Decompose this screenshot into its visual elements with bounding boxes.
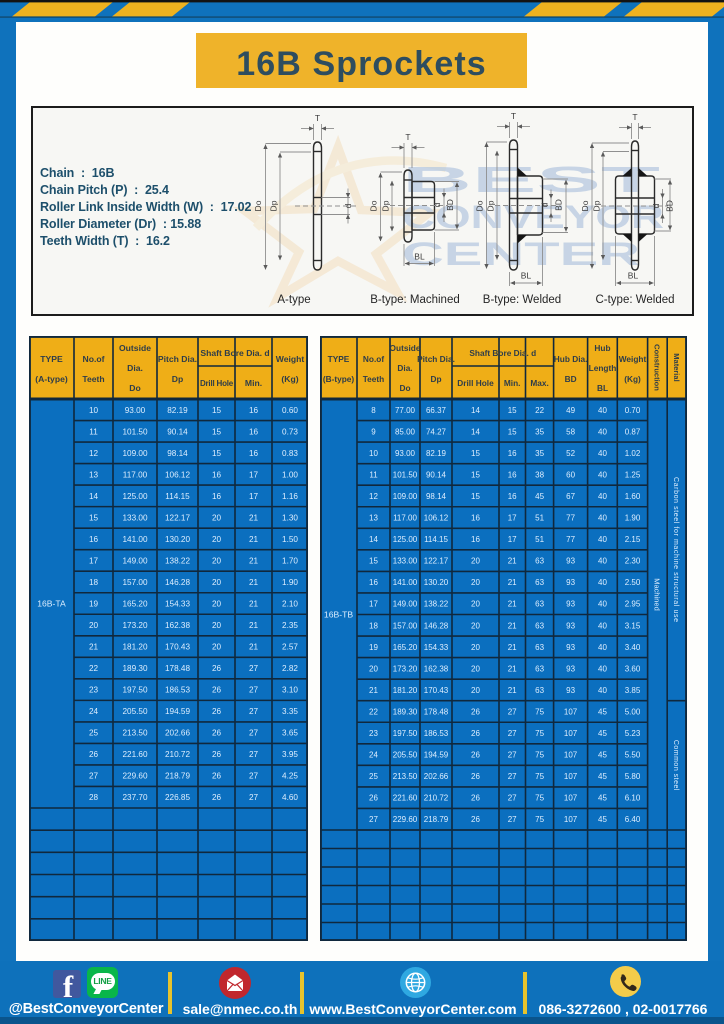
svg-text:21: 21 bbox=[508, 600, 517, 609]
svg-text:26: 26 bbox=[89, 750, 99, 759]
svg-text:3.60: 3.60 bbox=[625, 664, 641, 673]
svg-text:141.00: 141.00 bbox=[393, 578, 418, 587]
svg-text:Outside: Outside bbox=[119, 343, 151, 353]
svg-text:d: d bbox=[651, 203, 661, 208]
svg-text:45: 45 bbox=[598, 729, 607, 738]
svg-text:27: 27 bbox=[249, 793, 259, 802]
svg-text:40: 40 bbox=[598, 514, 607, 523]
svg-text:101.50: 101.50 bbox=[122, 427, 147, 436]
svg-text:74.27: 74.27 bbox=[426, 427, 447, 436]
svg-text:Hub: Hub bbox=[594, 343, 610, 353]
svg-text:2.30: 2.30 bbox=[625, 557, 641, 566]
svg-text:15: 15 bbox=[508, 427, 517, 436]
svg-text:22: 22 bbox=[369, 708, 378, 717]
svg-text:1.00: 1.00 bbox=[282, 470, 298, 479]
svg-text:16: 16 bbox=[508, 449, 517, 458]
svg-text:0.70: 0.70 bbox=[625, 406, 641, 415]
svg-text:23: 23 bbox=[89, 686, 99, 695]
svg-text:63: 63 bbox=[535, 686, 544, 695]
svg-text:Dp: Dp bbox=[486, 200, 496, 211]
svg-text:146.28: 146.28 bbox=[424, 621, 449, 630]
svg-text:107: 107 bbox=[564, 729, 578, 738]
svg-text:218.79: 218.79 bbox=[165, 772, 190, 781]
svg-text:(Kg): (Kg) bbox=[624, 374, 641, 384]
svg-text:15: 15 bbox=[212, 427, 222, 436]
svg-text:27: 27 bbox=[508, 794, 517, 803]
svg-text:26: 26 bbox=[212, 664, 222, 673]
svg-text:186.53: 186.53 bbox=[424, 729, 449, 738]
svg-text:15: 15 bbox=[471, 492, 480, 501]
svg-text:16: 16 bbox=[89, 535, 99, 544]
svg-text:162.38: 162.38 bbox=[165, 621, 190, 630]
svg-text:17: 17 bbox=[249, 492, 259, 501]
svg-text:15: 15 bbox=[212, 406, 222, 415]
svg-text:d: d bbox=[432, 202, 442, 207]
svg-text:12: 12 bbox=[369, 492, 378, 501]
svg-text:1.50: 1.50 bbox=[282, 535, 298, 544]
svg-text:173.20: 173.20 bbox=[393, 664, 418, 673]
svg-text:52: 52 bbox=[566, 449, 575, 458]
svg-text:26: 26 bbox=[471, 772, 480, 781]
svg-text:15: 15 bbox=[471, 449, 480, 458]
svg-text:122.17: 122.17 bbox=[165, 513, 190, 522]
svg-text:21: 21 bbox=[508, 578, 517, 587]
svg-text:98.14: 98.14 bbox=[167, 449, 188, 458]
svg-text:16: 16 bbox=[249, 449, 259, 458]
svg-text:93: 93 bbox=[566, 621, 575, 630]
svg-text:16: 16 bbox=[212, 470, 222, 479]
svg-text:Drill Hole: Drill Hole bbox=[457, 378, 494, 388]
svg-text:Length: Length bbox=[589, 363, 617, 373]
svg-text:75: 75 bbox=[535, 729, 544, 738]
svg-text:75: 75 bbox=[535, 751, 544, 760]
svg-text:TYPE: TYPE bbox=[40, 354, 63, 364]
svg-text:10: 10 bbox=[89, 406, 99, 415]
svg-text:BL: BL bbox=[414, 252, 425, 262]
svg-text:109.00: 109.00 bbox=[122, 449, 147, 458]
svg-text:23: 23 bbox=[369, 729, 378, 738]
svg-text:40: 40 bbox=[598, 600, 607, 609]
svg-text:194.59: 194.59 bbox=[424, 751, 449, 760]
svg-text:40: 40 bbox=[598, 686, 607, 695]
svg-text:2.10: 2.10 bbox=[282, 600, 298, 609]
svg-text:133.00: 133.00 bbox=[393, 557, 418, 566]
svg-text:No.of: No.of bbox=[83, 354, 105, 364]
svg-text:107: 107 bbox=[564, 708, 578, 717]
svg-text:6.10: 6.10 bbox=[625, 794, 641, 803]
svg-text:Do: Do bbox=[369, 200, 379, 211]
svg-text:20: 20 bbox=[212, 600, 222, 609]
svg-text:16B-TA: 16B-TA bbox=[37, 599, 66, 609]
svg-text:20: 20 bbox=[212, 513, 222, 522]
svg-text:15: 15 bbox=[471, 470, 480, 479]
svg-text:82.19: 82.19 bbox=[426, 449, 447, 458]
svg-text:27: 27 bbox=[249, 664, 259, 673]
svg-text:20: 20 bbox=[369, 664, 378, 673]
svg-text:27: 27 bbox=[249, 729, 259, 738]
svg-text:d: d bbox=[343, 203, 353, 208]
svg-text:19: 19 bbox=[89, 600, 99, 609]
svg-text:Teeth: Teeth bbox=[82, 374, 104, 384]
svg-text:Weight: Weight bbox=[276, 354, 305, 364]
svg-text:63: 63 bbox=[535, 643, 544, 652]
svg-text:1.16: 1.16 bbox=[282, 492, 298, 501]
svg-text:Dia.: Dia. bbox=[127, 363, 143, 373]
svg-text:157.00: 157.00 bbox=[122, 578, 147, 587]
svg-text:26: 26 bbox=[212, 729, 222, 738]
svg-text:40: 40 bbox=[598, 535, 607, 544]
svg-text:109.00: 109.00 bbox=[393, 492, 418, 501]
svg-text:14: 14 bbox=[471, 427, 480, 436]
svg-text:197.50: 197.50 bbox=[393, 729, 418, 738]
svg-text:157.00: 157.00 bbox=[393, 621, 418, 630]
svg-text:19: 19 bbox=[369, 643, 378, 652]
svg-text:40: 40 bbox=[598, 427, 607, 436]
svg-text:93.00: 93.00 bbox=[395, 449, 416, 458]
svg-text:106.12: 106.12 bbox=[424, 514, 449, 523]
svg-text:75: 75 bbox=[535, 772, 544, 781]
svg-text:117.00: 117.00 bbox=[393, 514, 417, 523]
svg-text:20: 20 bbox=[471, 557, 480, 566]
svg-text:77: 77 bbox=[566, 535, 575, 544]
svg-text:B-type: Welded: B-type: Welded bbox=[483, 294, 561, 306]
svg-text:BD: BD bbox=[565, 374, 577, 384]
svg-text:90.14: 90.14 bbox=[426, 470, 447, 479]
svg-text:27: 27 bbox=[249, 750, 259, 759]
svg-text:210.72: 210.72 bbox=[165, 750, 190, 759]
svg-text:26: 26 bbox=[212, 793, 222, 802]
svg-text:93: 93 bbox=[566, 686, 575, 695]
svg-text:141.00: 141.00 bbox=[122, 535, 147, 544]
svg-text:40: 40 bbox=[598, 664, 607, 673]
svg-text:0.60: 0.60 bbox=[282, 406, 298, 415]
svg-text:B-type: Machined: B-type: Machined bbox=[370, 294, 460, 306]
svg-text:20: 20 bbox=[212, 621, 222, 630]
svg-text:1.25: 1.25 bbox=[625, 470, 641, 479]
svg-text:4.25: 4.25 bbox=[282, 772, 298, 781]
svg-text:218.79: 218.79 bbox=[424, 815, 449, 824]
svg-text:130.20: 130.20 bbox=[165, 535, 190, 544]
svg-text:(Kg): (Kg) bbox=[281, 374, 298, 384]
svg-text:27: 27 bbox=[249, 707, 259, 716]
svg-text:1.02: 1.02 bbox=[625, 449, 641, 458]
svg-text:27: 27 bbox=[508, 751, 517, 760]
svg-text:40: 40 bbox=[598, 578, 607, 587]
svg-text:133.00: 133.00 bbox=[122, 513, 147, 522]
svg-text:0.83: 0.83 bbox=[282, 449, 298, 458]
svg-text:162.38: 162.38 bbox=[424, 664, 449, 673]
svg-text:75: 75 bbox=[535, 708, 544, 717]
svg-text:4.60: 4.60 bbox=[282, 793, 298, 802]
svg-text:17: 17 bbox=[89, 556, 99, 565]
svg-text:0.87: 0.87 bbox=[625, 427, 641, 436]
svg-text:22: 22 bbox=[89, 664, 99, 673]
svg-text:75: 75 bbox=[535, 815, 544, 824]
svg-text:130.20: 130.20 bbox=[424, 578, 449, 587]
svg-text:14: 14 bbox=[89, 492, 99, 501]
svg-text:26: 26 bbox=[369, 794, 378, 803]
svg-text:178.48: 178.48 bbox=[165, 664, 190, 673]
svg-text:BL: BL bbox=[521, 271, 532, 281]
svg-text:Dp: Dp bbox=[269, 200, 279, 211]
svg-text:Do: Do bbox=[253, 200, 263, 211]
svg-text:15: 15 bbox=[89, 513, 99, 522]
svg-text:Min.: Min. bbox=[504, 378, 521, 388]
svg-text:93: 93 bbox=[566, 664, 575, 673]
svg-text:165.20: 165.20 bbox=[393, 643, 418, 652]
svg-text:107: 107 bbox=[564, 751, 578, 760]
svg-text:20: 20 bbox=[471, 686, 480, 695]
svg-text:63: 63 bbox=[535, 621, 544, 630]
svg-text:Carbon steel for machine str: Carbon steel for machine structural use bbox=[672, 477, 679, 623]
svg-text:Pitch Dia.: Pitch Dia. bbox=[158, 354, 197, 364]
svg-text:101.50: 101.50 bbox=[393, 470, 418, 479]
svg-text:Dp: Dp bbox=[381, 200, 391, 211]
svg-text:Min.: Min. bbox=[245, 378, 262, 388]
svg-text:Pitch Dia.: Pitch Dia. bbox=[417, 354, 455, 364]
svg-text:93.00: 93.00 bbox=[125, 406, 146, 415]
svg-text:107: 107 bbox=[564, 815, 578, 824]
svg-text:1.90: 1.90 bbox=[282, 578, 298, 587]
svg-text:165.20: 165.20 bbox=[122, 600, 147, 609]
svg-text:20: 20 bbox=[212, 578, 222, 587]
svg-text:2.35: 2.35 bbox=[282, 621, 298, 630]
svg-text:T: T bbox=[511, 111, 516, 121]
svg-text:T: T bbox=[405, 132, 410, 142]
svg-text:40: 40 bbox=[598, 643, 607, 652]
svg-text:20: 20 bbox=[212, 535, 222, 544]
svg-text:Do: Do bbox=[580, 200, 590, 211]
svg-text:21: 21 bbox=[249, 643, 259, 652]
svg-text:21: 21 bbox=[508, 643, 517, 652]
svg-text:BD: BD bbox=[445, 199, 455, 211]
svg-text:2.57: 2.57 bbox=[282, 643, 298, 652]
svg-text:Shaft Bore Dia. d: Shaft Bore Dia. d bbox=[469, 348, 536, 358]
svg-text:85.00: 85.00 bbox=[395, 427, 416, 436]
svg-text:15: 15 bbox=[212, 449, 222, 458]
svg-text:BD: BD bbox=[554, 199, 564, 211]
svg-text:14: 14 bbox=[471, 406, 480, 415]
svg-text:63: 63 bbox=[535, 557, 544, 566]
svg-text:20: 20 bbox=[471, 664, 480, 673]
svg-text:(A-type): (A-type) bbox=[35, 374, 68, 384]
svg-text:21: 21 bbox=[508, 686, 517, 695]
svg-text:186.53: 186.53 bbox=[165, 686, 190, 695]
svg-text:5.23: 5.23 bbox=[625, 729, 641, 738]
svg-text:5.00: 5.00 bbox=[625, 708, 641, 717]
svg-text:16: 16 bbox=[249, 427, 259, 436]
svg-text:28: 28 bbox=[89, 793, 99, 802]
svg-text:210.72: 210.72 bbox=[424, 794, 449, 803]
svg-text:189.30: 189.30 bbox=[122, 664, 147, 673]
svg-text:173.20: 173.20 bbox=[122, 621, 147, 630]
svg-text:26: 26 bbox=[212, 772, 222, 781]
svg-text:21: 21 bbox=[249, 556, 259, 565]
svg-text:205.50: 205.50 bbox=[393, 751, 418, 760]
svg-text:27: 27 bbox=[508, 772, 517, 781]
svg-text:107: 107 bbox=[564, 772, 578, 781]
svg-text:35: 35 bbox=[535, 427, 544, 436]
svg-text:26: 26 bbox=[212, 686, 222, 695]
svg-text:82.19: 82.19 bbox=[167, 406, 188, 415]
svg-text:20: 20 bbox=[471, 621, 480, 630]
svg-text:26: 26 bbox=[471, 729, 480, 738]
svg-text:T: T bbox=[315, 113, 320, 123]
svg-text:178.48: 178.48 bbox=[424, 708, 449, 717]
svg-text:11: 11 bbox=[369, 470, 378, 479]
svg-text:3.95: 3.95 bbox=[282, 750, 298, 759]
svg-text:1.30: 1.30 bbox=[282, 513, 298, 522]
svg-text:170.43: 170.43 bbox=[424, 686, 449, 695]
svg-text:20: 20 bbox=[471, 643, 480, 652]
svg-text:9: 9 bbox=[371, 427, 376, 436]
svg-text:138.22: 138.22 bbox=[424, 600, 449, 609]
svg-text:237.70: 237.70 bbox=[122, 793, 147, 802]
svg-text:77: 77 bbox=[566, 514, 575, 523]
svg-text:Do: Do bbox=[475, 200, 485, 211]
svg-text:122.17: 122.17 bbox=[424, 557, 449, 566]
svg-text:8: 8 bbox=[371, 406, 376, 415]
svg-text:40: 40 bbox=[598, 557, 607, 566]
svg-text:213.50: 213.50 bbox=[122, 729, 147, 738]
svg-text:Material: Material bbox=[672, 353, 681, 381]
svg-text:202.66: 202.66 bbox=[424, 772, 449, 781]
svg-text:16: 16 bbox=[508, 492, 517, 501]
svg-text:3.85: 3.85 bbox=[625, 686, 641, 695]
svg-text:154.33: 154.33 bbox=[165, 600, 190, 609]
svg-text:2.15: 2.15 bbox=[625, 535, 641, 544]
svg-text:11: 11 bbox=[89, 427, 98, 436]
svg-text:3.15: 3.15 bbox=[625, 621, 641, 630]
svg-text:(B-type): (B-type) bbox=[323, 374, 355, 384]
svg-text:25: 25 bbox=[89, 729, 99, 738]
svg-text:22: 22 bbox=[535, 406, 544, 415]
svg-text:26: 26 bbox=[471, 751, 480, 760]
svg-text:BL: BL bbox=[597, 383, 608, 393]
svg-text:Max.: Max. bbox=[530, 378, 548, 388]
svg-text:93: 93 bbox=[566, 578, 575, 587]
svg-text:3.35: 3.35 bbox=[282, 707, 298, 716]
svg-text:194.59: 194.59 bbox=[165, 707, 190, 716]
svg-text:107: 107 bbox=[564, 794, 578, 803]
svg-text:BL: BL bbox=[628, 271, 639, 281]
svg-text:27: 27 bbox=[508, 815, 517, 824]
svg-text:3.10: 3.10 bbox=[282, 686, 298, 695]
svg-text:12: 12 bbox=[89, 449, 99, 458]
svg-text:16: 16 bbox=[471, 535, 480, 544]
svg-text:16: 16 bbox=[212, 492, 222, 501]
svg-text:BD: BD bbox=[665, 200, 675, 212]
svg-text:93: 93 bbox=[566, 600, 575, 609]
svg-text:181.20: 181.20 bbox=[393, 686, 418, 695]
svg-text:45: 45 bbox=[598, 772, 607, 781]
svg-text:20: 20 bbox=[471, 578, 480, 587]
svg-text:5.80: 5.80 bbox=[625, 772, 641, 781]
svg-text:45: 45 bbox=[598, 794, 607, 803]
svg-text:26: 26 bbox=[471, 708, 480, 717]
svg-text:63: 63 bbox=[535, 578, 544, 587]
svg-text:24: 24 bbox=[89, 707, 99, 716]
svg-text:1.90: 1.90 bbox=[625, 514, 641, 523]
svg-text:21: 21 bbox=[89, 643, 99, 652]
svg-text:d: d bbox=[540, 202, 550, 207]
svg-text:90.14: 90.14 bbox=[167, 427, 188, 436]
svg-text:58: 58 bbox=[566, 427, 575, 436]
svg-text:93: 93 bbox=[566, 557, 575, 566]
svg-text:26: 26 bbox=[471, 794, 480, 803]
svg-text:138.22: 138.22 bbox=[165, 556, 190, 565]
svg-text:213.50: 213.50 bbox=[393, 772, 418, 781]
svg-text:202.66: 202.66 bbox=[165, 729, 190, 738]
svg-text:20: 20 bbox=[212, 556, 222, 565]
svg-text:13: 13 bbox=[369, 514, 378, 523]
svg-text:114.15: 114.15 bbox=[424, 535, 448, 544]
svg-text:Dia.: Dia. bbox=[397, 363, 412, 373]
svg-text:75: 75 bbox=[535, 794, 544, 803]
svg-text:21: 21 bbox=[249, 513, 259, 522]
svg-text:197.50: 197.50 bbox=[122, 686, 147, 695]
svg-text:Construction: Construction bbox=[652, 344, 661, 391]
svg-text:221.60: 221.60 bbox=[393, 794, 418, 803]
svg-text:1.70: 1.70 bbox=[282, 556, 298, 565]
svg-text:45: 45 bbox=[598, 751, 607, 760]
svg-text:16: 16 bbox=[249, 406, 259, 415]
svg-text:16: 16 bbox=[471, 514, 480, 523]
svg-text:98.14: 98.14 bbox=[426, 492, 447, 501]
svg-text:35: 35 bbox=[535, 449, 544, 458]
svg-text:51: 51 bbox=[535, 535, 544, 544]
svg-text:63: 63 bbox=[535, 664, 544, 673]
svg-text:21: 21 bbox=[249, 621, 259, 630]
svg-text:149.00: 149.00 bbox=[393, 600, 418, 609]
svg-text:Teeth: Teeth bbox=[363, 374, 385, 384]
svg-text:C-type: Welded: C-type: Welded bbox=[595, 294, 674, 306]
svg-text:15: 15 bbox=[508, 406, 517, 415]
svg-text:20: 20 bbox=[471, 600, 480, 609]
svg-text:226.85: 226.85 bbox=[165, 793, 190, 802]
svg-text:Do: Do bbox=[129, 383, 140, 393]
svg-text:40: 40 bbox=[598, 406, 607, 415]
svg-text:10: 10 bbox=[369, 449, 378, 458]
svg-text:125.00: 125.00 bbox=[122, 492, 147, 501]
svg-text:27: 27 bbox=[249, 686, 259, 695]
svg-text:18: 18 bbox=[89, 578, 99, 587]
svg-text:114.15: 114.15 bbox=[165, 492, 190, 501]
svg-text:16B-TB: 16B-TB bbox=[324, 610, 353, 620]
svg-text:6.40: 6.40 bbox=[625, 815, 641, 824]
svg-text:77.00: 77.00 bbox=[395, 406, 416, 415]
svg-text:26: 26 bbox=[471, 815, 480, 824]
svg-text:17: 17 bbox=[508, 514, 517, 523]
svg-text:Weight: Weight bbox=[619, 354, 647, 364]
svg-text:25: 25 bbox=[369, 772, 378, 781]
svg-text:21: 21 bbox=[508, 621, 517, 630]
svg-text:21: 21 bbox=[369, 686, 378, 695]
svg-text:18: 18 bbox=[369, 621, 378, 630]
svg-text:149.00: 149.00 bbox=[122, 556, 147, 565]
svg-text:Common steel: Common steel bbox=[672, 740, 679, 791]
svg-text:40: 40 bbox=[598, 621, 607, 630]
svg-text:Dp: Dp bbox=[430, 374, 441, 384]
svg-text:14: 14 bbox=[369, 535, 378, 544]
svg-text:40: 40 bbox=[598, 470, 607, 479]
svg-text:T: T bbox=[632, 112, 637, 122]
svg-text:146.28: 146.28 bbox=[165, 578, 190, 587]
svg-text:21: 21 bbox=[508, 664, 517, 673]
svg-text:2.95: 2.95 bbox=[625, 600, 641, 609]
svg-text:TYPE: TYPE bbox=[328, 354, 350, 364]
svg-text:27: 27 bbox=[249, 772, 259, 781]
